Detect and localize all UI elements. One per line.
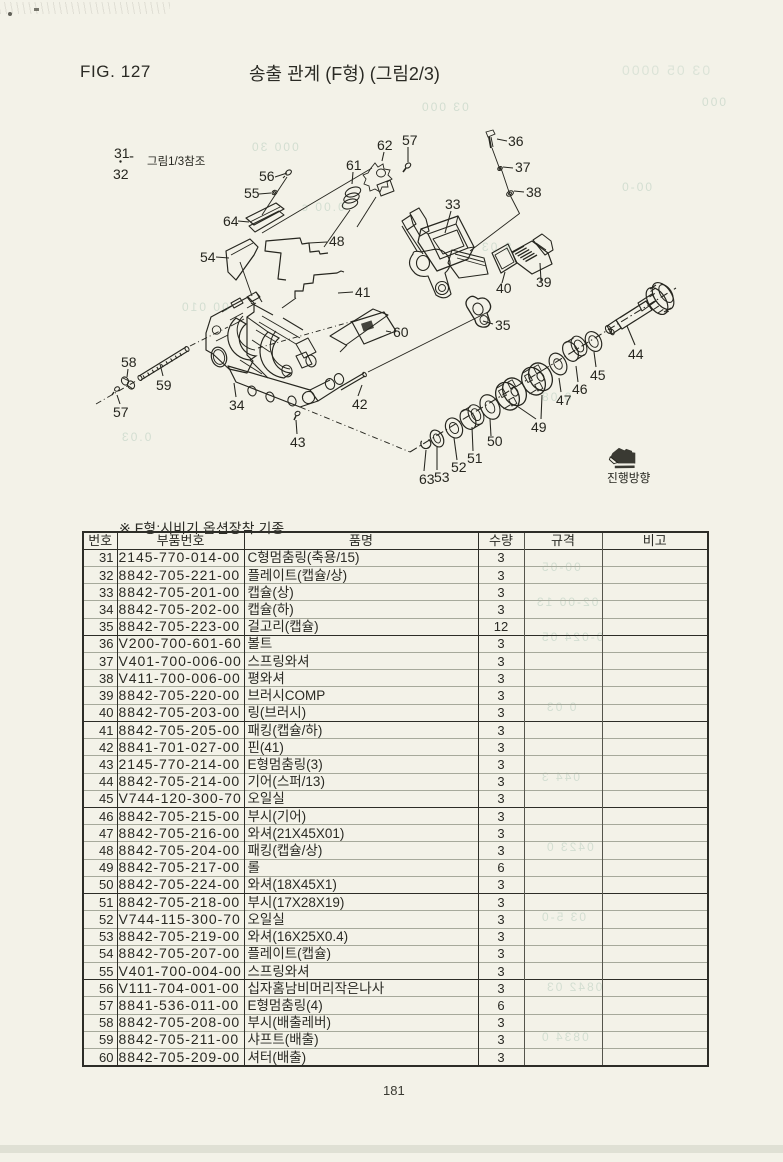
svg-text:53: 53 — [434, 469, 450, 485]
svg-text:-: - — [129, 148, 134, 165]
svg-text:51: 51 — [467, 450, 483, 466]
svg-text:41: 41 — [355, 284, 371, 300]
svg-text:59: 59 — [156, 377, 172, 393]
svg-text:48: 48 — [329, 233, 345, 249]
svg-text:42: 42 — [352, 396, 368, 412]
svg-text:37: 37 — [515, 159, 531, 175]
svg-text:64: 64 — [223, 213, 239, 229]
svg-text:진행방향: 진행방향 — [607, 471, 651, 485]
svg-text:61: 61 — [346, 157, 362, 173]
svg-text:55: 55 — [244, 185, 260, 201]
svg-text:39: 39 — [536, 274, 552, 290]
svg-text:57: 57 — [402, 132, 418, 148]
svg-text:60: 60 — [393, 324, 409, 340]
svg-text:35: 35 — [495, 317, 511, 333]
svg-text:40: 40 — [496, 280, 512, 296]
svg-text:63: 63 — [419, 471, 435, 487]
svg-text:그림1/3참조: 그림1/3참조 — [147, 155, 205, 168]
svg-text:56: 56 — [259, 168, 275, 184]
svg-text:33: 33 — [445, 196, 461, 212]
svg-text:54: 54 — [200, 249, 216, 265]
svg-text:50: 50 — [487, 433, 503, 449]
svg-text:62: 62 — [377, 137, 393, 153]
svg-text:36: 36 — [508, 133, 524, 149]
svg-text:45: 45 — [590, 367, 606, 383]
svg-text:44: 44 — [628, 346, 644, 362]
svg-text:31: 31 — [114, 145, 130, 161]
svg-text:52: 52 — [451, 459, 467, 475]
svg-text:57: 57 — [113, 404, 129, 420]
svg-text:49: 49 — [531, 419, 547, 435]
svg-text:43: 43 — [290, 434, 306, 450]
svg-text:46: 46 — [572, 381, 588, 397]
svg-text:34: 34 — [229, 397, 245, 413]
svg-text:58: 58 — [121, 354, 137, 370]
svg-text:38: 38 — [526, 184, 542, 200]
svg-text:32: 32 — [113, 166, 129, 182]
